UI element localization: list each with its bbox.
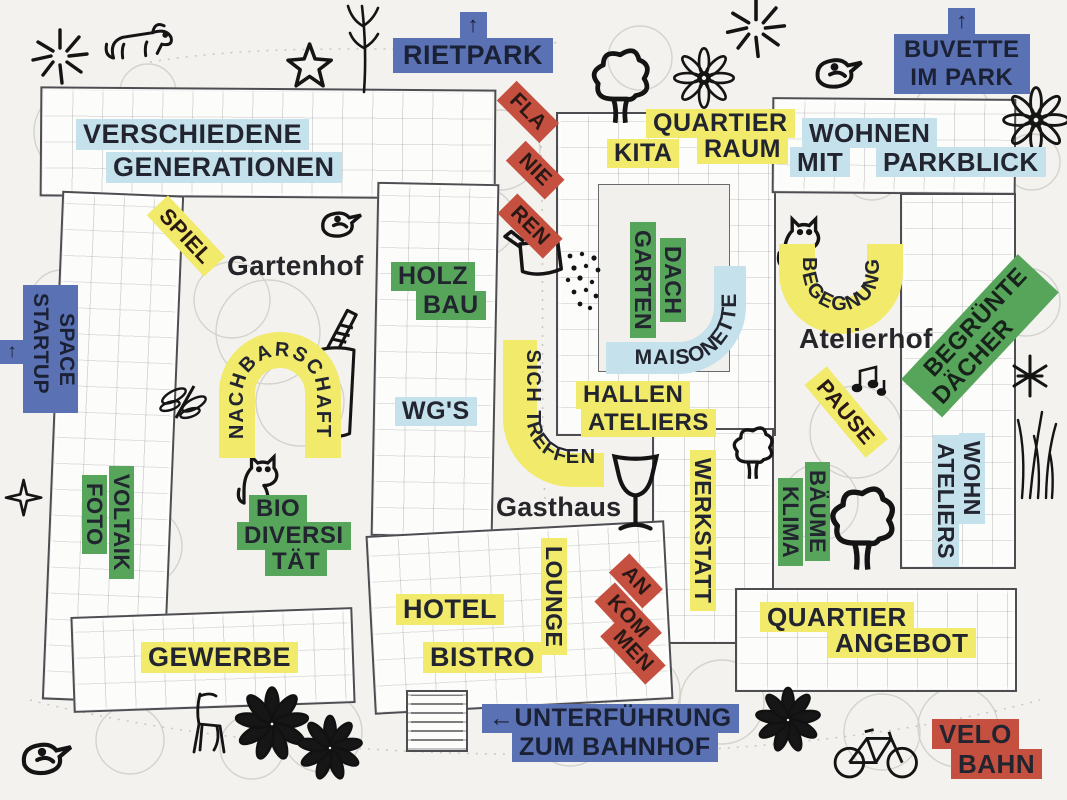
label-wohn: WOHN [959,433,985,524]
site-plan-map: NACHBARSCHAFT BEGEGNUNG MAISONETTE SICH … [0,0,1067,800]
bird-icon [323,213,361,236]
place-gasthaus: Gasthaus [489,492,628,523]
starburst-icon [33,30,87,83]
label-pause: PAUSE [804,366,887,457]
arrow-up-icon: ↑ [0,340,24,364]
flower-icon [755,688,820,752]
label-ateliers: ATELIERS [581,409,716,437]
sign-velobahn-line2: BAHN [951,749,1042,779]
place-atelierhof: Atelierhof [792,323,940,355]
label-bio: BIO [249,495,307,523]
label-bau: BAU [416,291,486,320]
sign-buvette-im-park: ↑ BUVETTE IM PARK [894,8,1030,94]
svg-text:NACHBARSCHAFT: NACHBARSCHAFT [226,339,335,440]
label-bistro: BISTRO [423,642,542,673]
label-klima: KLIMA [778,478,803,566]
sign-unterfuehrung-line2: ZUM BAHNHOF [512,733,718,762]
label-voltaik: VOLTAIK [109,466,134,579]
plant-sprig-icon [348,6,378,92]
cat-icon [779,219,819,267]
label-hallen: HALLEN [576,381,690,409]
sign-velobahn-line1: VELO [932,719,1019,749]
label-kita: KITA [607,139,679,168]
sign-startup-word2: SPACE [55,309,77,390]
label-holz: HOLZ [391,262,475,291]
sign-rietpark-label: RIETPARK [393,38,553,73]
label-garten: GARTEN [630,222,656,338]
label-nachbarschaft: NACHBARSCHAFT [226,339,335,440]
label-wgs: WG'S [395,397,477,426]
building-mid-bar [371,182,500,538]
label-werkstatt: WERKSTATT [690,450,716,611]
label-begegnung: BEGEGNUNG [797,257,884,315]
nachbarschaft-band [237,350,323,458]
label-wohnen: WOHNEN [802,118,937,148]
label-taet: TÄT [265,548,327,576]
arrow-up-icon: ↑ [948,8,975,34]
flower-icon [297,716,362,780]
label-diversi: DIVERSI [237,522,351,550]
starburst-icon [728,1,785,57]
label-hotel: HOTEL [396,594,504,625]
star-icon [288,44,331,86]
arrow-up-icon: ↑ [460,12,487,38]
star-icon [6,480,41,515]
tree-icon [833,489,893,570]
label-generationen: GENERATIONEN [106,152,342,183]
label-parkblick: PARKBLICK [876,147,1046,177]
music-notes-icon [853,367,885,395]
flower-icon [674,48,733,107]
bird-icon [818,60,862,87]
label-dach: DACH [660,238,686,322]
bicycle-icon [835,730,916,777]
dog-icon [106,24,171,58]
sign-startup-word1: STARTUP [29,289,51,398]
label-quartier-raum-line2: RAUM [697,135,788,164]
place-gartenhof: Gartenhof [220,250,370,282]
asterisk-plant-icon [1014,356,1046,396]
label-baeume: BÄUME [805,462,830,561]
drink-cup-icon [319,310,356,436]
grass-icon [1018,412,1056,498]
label-mit: MIT [790,147,850,177]
sign-unterfuehrung-line1: ←UNTERFÜHRUNG [482,704,739,733]
label-flanieren-seg1: FLA [497,81,559,143]
label-verschiedene: VERSCHIEDENE [76,119,309,150]
sign-buvette-line2: IM PARK [904,64,1020,92]
sign-rietpark: ↑ RIETPARK [393,12,553,73]
label-lounge: LOUNGE [541,538,567,655]
svg-text:BEGEGNUNG: BEGEGNUNG [797,257,884,315]
begegnung-band [797,244,885,316]
building-detail-icon [406,690,468,752]
label-wohn-ateliers: ATELIERS [933,435,959,567]
label-flanieren-seg3: REN [498,194,563,259]
bird-icon [24,745,71,773]
label-quartier-raum-line1: QUARTIER [646,109,795,138]
sign-buvette-line1: BUVETTE [904,36,1020,64]
label-foto: FOTO [82,475,107,554]
label-gewerbe: GEWERBE [141,642,298,673]
label-quartier-angebot-line2: ANGEBOT [828,628,976,658]
